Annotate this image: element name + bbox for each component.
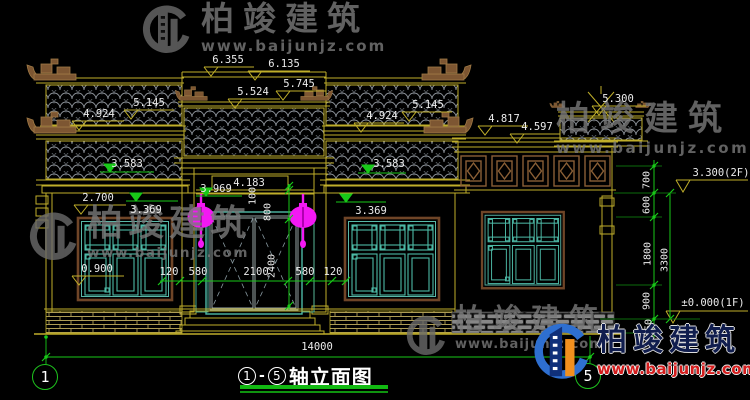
level-5524: 5.524	[237, 86, 269, 98]
level-0000-1f: ±0.000(1F)	[681, 297, 744, 309]
level-6355: 6.355	[212, 54, 244, 66]
axis-number-1: 1	[40, 368, 49, 386]
axis-bubble-1: 1	[32, 364, 58, 390]
railing-panels	[461, 156, 610, 186]
level-4597: 4.597	[521, 121, 553, 133]
dim-700: 700	[642, 171, 653, 189]
window-right	[345, 218, 439, 300]
level-5145-right: 5.145	[412, 99, 444, 111]
dim-800: 800	[263, 203, 274, 221]
level-4817: 4.817	[488, 113, 520, 125]
axis-bubble-5: 5	[575, 363, 601, 389]
dimension-chain-door-horizontal	[158, 277, 350, 285]
level-3369-right: 3.369	[355, 205, 387, 217]
level-3969: 3.969	[200, 183, 232, 195]
base-stone	[452, 312, 614, 333]
window-left	[78, 218, 172, 300]
dim-600: 600	[642, 196, 653, 214]
dim-450: 450	[644, 319, 655, 337]
level-3300-2f: 3.300(2F)	[693, 167, 750, 179]
level-5745: 5.745	[283, 78, 315, 90]
dim-14000: 14000	[301, 341, 333, 353]
ridge-ornament	[27, 59, 76, 80]
dim-120-left: 120	[160, 266, 179, 278]
dimension-chain-door-vertical	[285, 182, 293, 310]
dim-1800: 1800	[643, 242, 654, 266]
title-underline-thick	[240, 385, 388, 389]
title-underline-thin	[240, 391, 388, 393]
level-5145-left: 5.145	[133, 97, 165, 109]
entrance-door	[196, 212, 314, 314]
level-0900: 0.900	[81, 263, 113, 275]
base-bricks	[44, 309, 455, 333]
dim-3300: 3300	[660, 248, 671, 272]
level-5300: 5.300	[602, 93, 634, 105]
dim-120-right: 120	[324, 266, 343, 278]
level-4924-left: 4.924	[83, 108, 115, 120]
ridge-ornament	[636, 101, 651, 107]
window-wing	[482, 212, 564, 288]
level-3369-left: 3.369	[130, 204, 162, 216]
dim-100: 100	[248, 187, 259, 205]
title-axis-circle-5: 5	[268, 367, 286, 385]
lantern-right	[290, 194, 317, 248]
dim-2100: 2100	[243, 266, 268, 278]
title-dash: -	[259, 368, 265, 384]
level-6135: 6.135	[268, 58, 300, 70]
dim-2400: 2400	[267, 254, 278, 278]
dim-580-right: 580	[296, 266, 315, 278]
cad-elevation-screenshot: 柏竣建筑 www.baijunjz.com 柏竣建筑 www.baijunjz.…	[0, 0, 750, 400]
level-4924-right: 4.924	[366, 110, 398, 122]
axis-number-5: 5	[583, 367, 592, 385]
level-3583-right: 3.583	[373, 158, 405, 170]
dim-900: 900	[642, 292, 653, 310]
title-axis-circle-1: 1	[238, 367, 256, 385]
dim-580-left: 580	[189, 266, 208, 278]
ridge-ornament	[550, 101, 565, 107]
level-3583-left: 3.583	[111, 158, 143, 170]
level-2700: 2.700	[82, 192, 114, 204]
ridge-ornament	[422, 59, 471, 80]
